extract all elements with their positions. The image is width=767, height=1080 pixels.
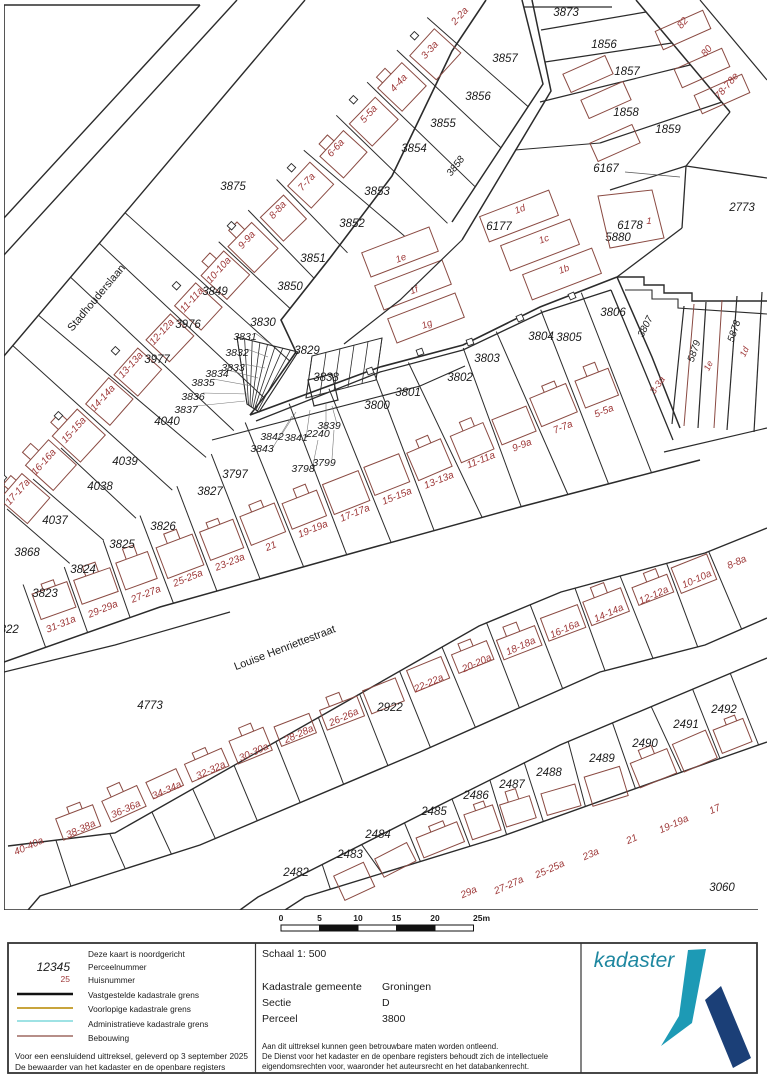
- svg-text:10: 10: [353, 913, 363, 923]
- svg-text:12345: 12345: [37, 960, 71, 974]
- svg-text:4773: 4773: [137, 700, 163, 712]
- svg-text:3852: 3852: [339, 218, 365, 230]
- svg-text:30-30a: 30-30a: [238, 741, 271, 764]
- svg-text:Huisnummer: Huisnummer: [88, 975, 135, 985]
- svg-text:1d: 1d: [738, 344, 752, 358]
- svg-text:3854: 3854: [401, 143, 427, 155]
- svg-text:4038: 4038: [87, 481, 113, 493]
- svg-text:2483: 2483: [336, 849, 363, 861]
- svg-text:6-6a: 6-6a: [325, 137, 347, 160]
- svg-text:2489: 2489: [588, 753, 615, 765]
- svg-text:21: 21: [624, 832, 640, 847]
- svg-text:27-27a: 27-27a: [492, 874, 526, 897]
- svg-text:D: D: [382, 997, 390, 1009]
- svg-text:3850: 3850: [277, 281, 303, 293]
- svg-text:12-12a: 12-12a: [148, 317, 177, 348]
- svg-text:1d: 1d: [513, 202, 527, 216]
- svg-text:36-36a: 36-36a: [110, 798, 143, 821]
- svg-text:3856: 3856: [465, 91, 491, 103]
- svg-text:6178: 6178: [617, 220, 643, 232]
- svg-text:3855: 3855: [430, 118, 456, 130]
- svg-text:5-5a: 5-5a: [358, 103, 380, 126]
- svg-text:Bebouwing: Bebouwing: [88, 1033, 129, 1043]
- svg-text:23-23a: 23-23a: [213, 552, 247, 574]
- svg-text:2485: 2485: [420, 806, 447, 818]
- svg-text:29-29a: 29-29a: [86, 599, 120, 621]
- svg-text:4040: 4040: [154, 416, 180, 428]
- svg-text:5: 5: [317, 913, 322, 923]
- svg-text:De Dienst voor het kadaster en: De Dienst voor het kadaster en de openba…: [262, 1052, 548, 1061]
- svg-text:Administratieve kadastrale gre: Administratieve kadastrale grens: [88, 1019, 208, 1029]
- svg-text:9-9a: 9-9a: [511, 437, 534, 455]
- svg-text:28-28a: 28-28a: [282, 723, 316, 746]
- svg-text:3842: 3842: [260, 431, 284, 443]
- svg-text:0: 0: [279, 913, 284, 923]
- svg-text:25m: 25m: [473, 913, 490, 923]
- svg-text:13-13a: 13-13a: [117, 350, 146, 381]
- svg-text:7-7a: 7-7a: [296, 171, 318, 194]
- svg-text:3806: 3806: [600, 307, 626, 319]
- svg-text:25-25a: 25-25a: [533, 858, 567, 881]
- svg-text:3802: 3802: [447, 372, 473, 384]
- svg-text:eigendomsrechten voor, waarond: eigendomsrechten voor, waaronder het aut…: [262, 1062, 529, 1071]
- svg-text:21: 21: [263, 539, 278, 554]
- svg-text:3804: 3804: [528, 331, 554, 343]
- svg-text:3835: 3835: [191, 377, 215, 389]
- svg-text:16-16a: 16-16a: [549, 618, 582, 641]
- svg-text:1b: 1b: [557, 263, 571, 277]
- svg-text:14-14a: 14-14a: [89, 383, 118, 414]
- svg-text:3837: 3837: [174, 404, 199, 416]
- svg-text:3849: 3849: [202, 286, 228, 298]
- svg-text:3800: 3800: [364, 400, 390, 412]
- svg-text:Sectie: Sectie: [262, 997, 291, 1009]
- svg-text:3803: 3803: [474, 353, 500, 365]
- svg-text:Kadastrale gemeente: Kadastrale gemeente: [262, 981, 362, 993]
- svg-text:Louise Henriettestraat: Louise Henriettestraat: [233, 623, 338, 673]
- svg-text:2486: 2486: [462, 790, 489, 802]
- svg-text:3830: 3830: [250, 317, 276, 329]
- svg-text:3853: 3853: [364, 186, 390, 198]
- svg-text:23a: 23a: [580, 846, 601, 863]
- svg-text:3-3a: 3-3a: [648, 375, 668, 397]
- svg-text:10-10a: 10-10a: [205, 255, 234, 286]
- svg-text:2490: 2490: [631, 738, 658, 750]
- svg-text:3873: 3873: [553, 7, 579, 19]
- svg-text:3868: 3868: [14, 547, 40, 559]
- svg-text:3857: 3857: [492, 53, 518, 65]
- svg-text:Voorlopige kadastrale grens: Voorlopige kadastrale grens: [88, 1004, 191, 1014]
- svg-text:20-20a: 20-20a: [460, 652, 494, 675]
- svg-text:3822: 3822: [0, 624, 19, 636]
- svg-text:3832: 3832: [225, 347, 249, 359]
- svg-text:9-9a: 9-9a: [236, 229, 258, 252]
- svg-text:12-12a: 12-12a: [638, 584, 671, 607]
- svg-text:5878: 5878: [726, 319, 743, 344]
- svg-text:8-8a: 8-8a: [726, 553, 749, 571]
- svg-text:1858: 1858: [613, 107, 639, 119]
- svg-text:2773: 2773: [728, 202, 755, 214]
- svg-text:3805: 3805: [556, 332, 582, 344]
- svg-text:Schaal 1: 500: Schaal 1: 500: [262, 948, 326, 960]
- svg-text:18-18a: 18-18a: [505, 635, 538, 658]
- svg-text:13-13a: 13-13a: [423, 470, 456, 492]
- svg-text:3800: 3800: [382, 1013, 406, 1025]
- svg-text:5879: 5879: [686, 339, 703, 364]
- svg-text:3807: 3807: [636, 314, 656, 339]
- svg-text:15: 15: [392, 913, 402, 923]
- svg-text:2922: 2922: [376, 702, 403, 714]
- svg-text:3797: 3797: [222, 469, 248, 481]
- svg-text:5-5a: 5-5a: [593, 403, 616, 421]
- svg-text:3827: 3827: [197, 486, 223, 498]
- svg-text:3060: 3060: [709, 882, 735, 894]
- svg-text:Groningen: Groningen: [382, 981, 431, 993]
- svg-text:1857: 1857: [614, 66, 640, 78]
- svg-text:3801: 3801: [395, 387, 421, 399]
- svg-text:Deze kaart is noordgericht: Deze kaart is noordgericht: [88, 949, 186, 959]
- svg-text:3798: 3798: [291, 463, 315, 475]
- svg-text:6167: 6167: [593, 163, 619, 175]
- svg-text:25: 25: [61, 974, 71, 984]
- svg-text:3858: 3858: [445, 154, 468, 179]
- svg-text:Perceelnummer: Perceelnummer: [88, 962, 147, 972]
- svg-text:2-2a: 2-2a: [449, 5, 472, 28]
- svg-text:kadaster: kadaster: [594, 949, 676, 972]
- svg-text:20: 20: [430, 913, 440, 923]
- svg-text:3977: 3977: [144, 354, 170, 366]
- svg-text:2492: 2492: [710, 704, 737, 716]
- svg-text:82: 82: [675, 15, 691, 31]
- svg-text:2488: 2488: [535, 767, 562, 779]
- svg-text:Vastgestelde kadastrale grens: Vastgestelde kadastrale grens: [88, 990, 199, 1000]
- svg-text:19-19a: 19-19a: [658, 813, 691, 836]
- svg-text:2482: 2482: [282, 867, 309, 879]
- svg-text:2487: 2487: [498, 779, 525, 791]
- svg-text:78-78e: 78-78e: [713, 71, 742, 102]
- svg-text:17-17a: 17-17a: [4, 477, 33, 508]
- svg-text:3825: 3825: [109, 539, 135, 551]
- svg-text:3823: 3823: [32, 588, 58, 600]
- svg-text:3836: 3836: [181, 391, 205, 403]
- svg-text:2240: 2240: [305, 428, 330, 440]
- svg-text:1859: 1859: [655, 124, 681, 136]
- svg-text:34-34a: 34-34a: [151, 779, 184, 802]
- svg-text:29a: 29a: [458, 884, 479, 901]
- svg-text:3826: 3826: [150, 521, 176, 533]
- svg-text:16-16a: 16-16a: [30, 447, 59, 478]
- svg-text:1: 1: [646, 216, 651, 227]
- svg-text:Voor een eensluidend uittrekse: Voor een eensluidend uittreksel, gelever…: [15, 1051, 248, 1061]
- svg-text:3829: 3829: [294, 345, 320, 357]
- svg-text:3831: 3831: [233, 331, 256, 343]
- svg-text:3875: 3875: [220, 181, 246, 193]
- svg-text:40-40a: 40-40a: [13, 835, 46, 858]
- svg-text:6177: 6177: [486, 221, 512, 233]
- svg-text:Aan dit uittreksel kunnen geen: Aan dit uittreksel kunnen geen betrouwba…: [262, 1042, 498, 1051]
- svg-text:8-8a: 8-8a: [267, 199, 289, 222]
- svg-text:De bewaarder van het kadaster: De bewaarder van het kadaster en de open…: [15, 1062, 225, 1072]
- svg-text:15-15a: 15-15a: [60, 415, 89, 446]
- svg-text:1856: 1856: [591, 39, 617, 51]
- svg-text:Perceel: Perceel: [262, 1013, 298, 1025]
- svg-text:4039: 4039: [112, 456, 138, 468]
- svg-text:1e: 1e: [702, 359, 715, 372]
- svg-text:14-14a: 14-14a: [593, 602, 626, 625]
- svg-text:19-19a: 19-19a: [297, 519, 330, 541]
- svg-text:2491: 2491: [672, 719, 699, 731]
- svg-text:4037: 4037: [42, 515, 68, 527]
- svg-text:1c: 1c: [537, 233, 551, 247]
- svg-text:4-4a: 4-4a: [388, 72, 410, 95]
- svg-text:3824: 3824: [70, 564, 96, 576]
- svg-text:3838: 3838: [313, 372, 339, 384]
- svg-text:11-11a: 11-11a: [465, 450, 497, 471]
- svg-text:3851: 3851: [300, 253, 326, 265]
- svg-text:22-22a: 22-22a: [412, 672, 446, 695]
- svg-text:2484: 2484: [364, 829, 391, 841]
- svg-text:15-15a: 15-15a: [381, 486, 414, 508]
- svg-text:3976: 3976: [175, 319, 201, 331]
- svg-text:10-10a: 10-10a: [681, 568, 714, 591]
- svg-text:17: 17: [708, 802, 723, 817]
- svg-text:3799: 3799: [312, 457, 336, 469]
